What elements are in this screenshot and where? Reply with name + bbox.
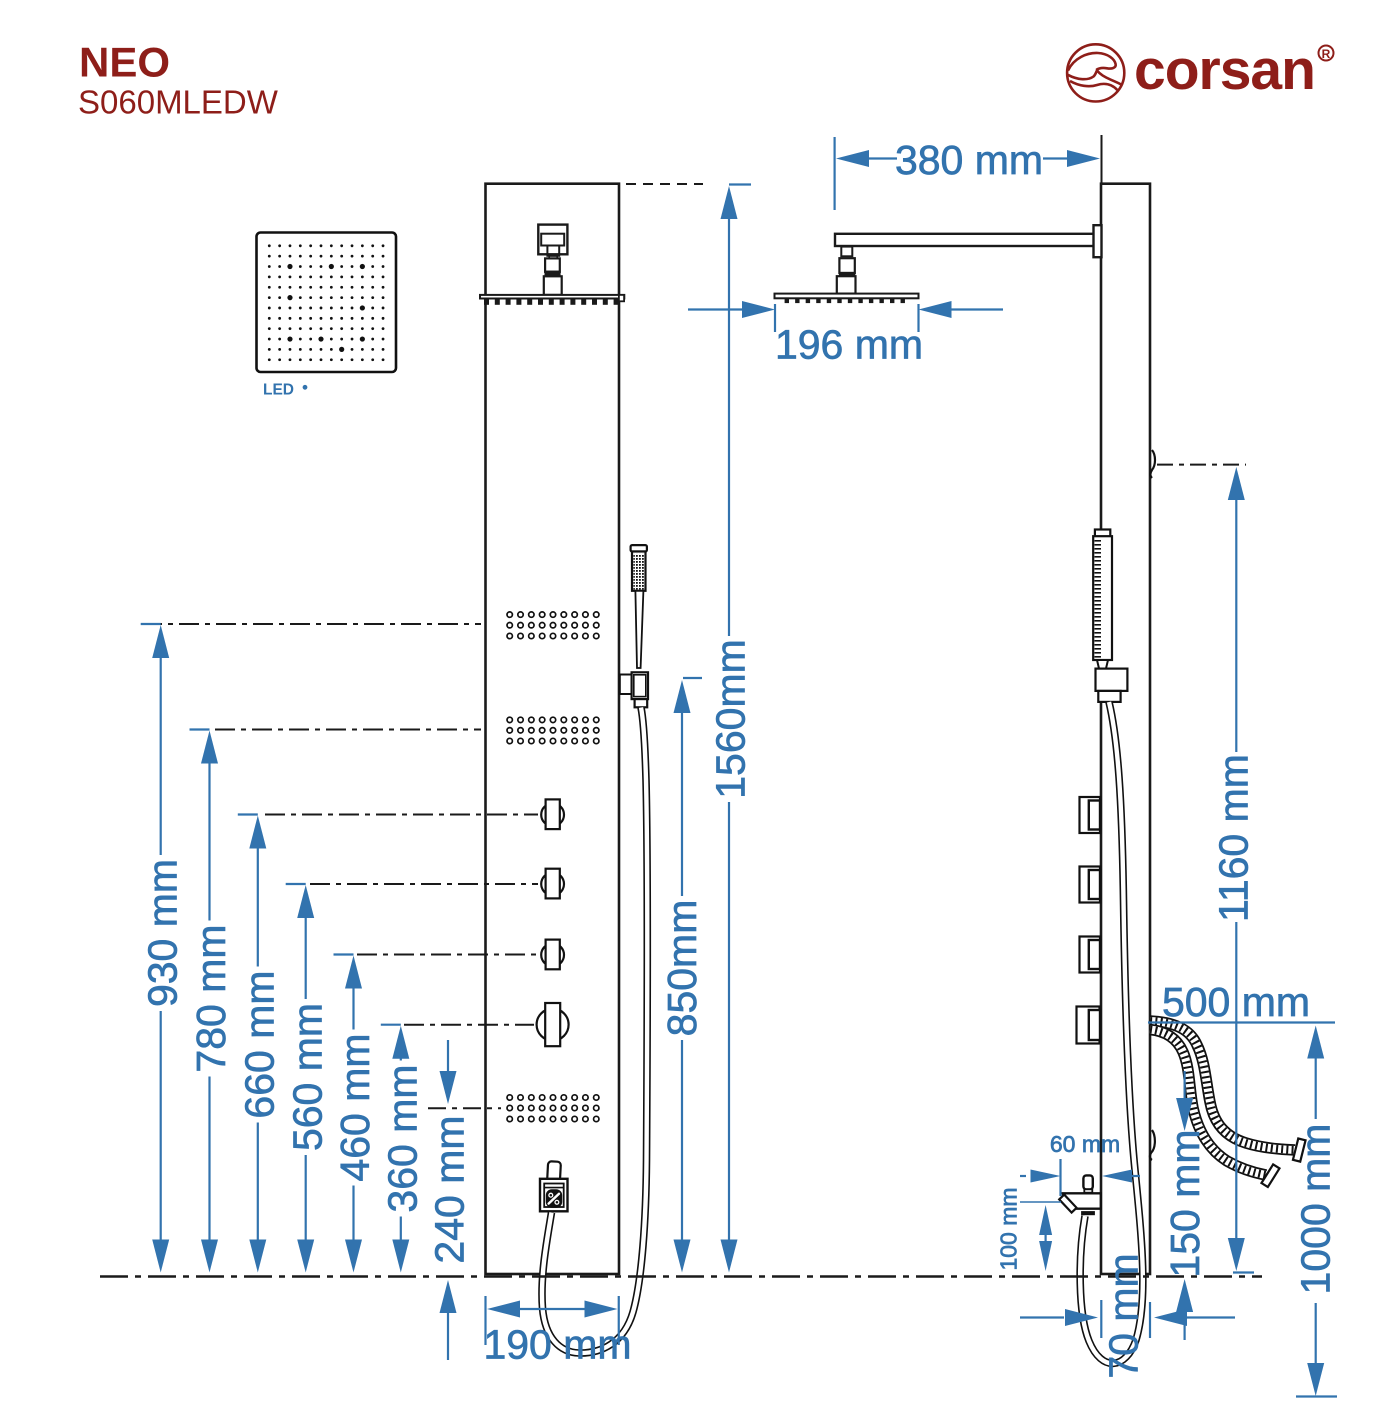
svg-text:100 mm: 100 mm — [996, 1187, 1022, 1270]
svg-text:660 mm: 660 mm — [236, 970, 282, 1118]
svg-text:1160 mm: 1160 mm — [1211, 754, 1257, 922]
svg-text:560 mm: 560 mm — [284, 1003, 330, 1151]
svg-text:70 mm: 70 mm — [1101, 1253, 1147, 1378]
svg-text:150 mm: 150 mm — [1162, 1129, 1208, 1277]
svg-text:1560mm: 1560mm — [708, 639, 754, 799]
svg-text:S060MLEDW: S060MLEDW — [78, 84, 279, 121]
svg-text:LED: LED — [263, 382, 294, 399]
svg-text:780 mm: 780 mm — [188, 924, 234, 1072]
svg-text:500 mm: 500 mm — [1162, 979, 1310, 1025]
svg-text:190 mm: 190 mm — [483, 1322, 631, 1368]
svg-text:930 mm: 930 mm — [139, 859, 185, 1007]
svg-text:380 mm: 380 mm — [895, 137, 1043, 183]
svg-text:NEO: NEO — [79, 39, 170, 86]
svg-text:460 mm: 460 mm — [332, 1033, 378, 1181]
svg-text:196 mm: 196 mm — [775, 322, 923, 368]
svg-text:240 mm: 240 mm — [427, 1115, 473, 1263]
svg-text:corsan: corsan — [1134, 38, 1315, 102]
svg-text:60 mm: 60 mm — [1050, 1131, 1120, 1157]
svg-text:850mm: 850mm — [659, 900, 705, 1037]
svg-text:R: R — [1322, 47, 1331, 61]
svg-text:1000 mm: 1000 mm — [1293, 1124, 1339, 1295]
svg-text:360 mm: 360 mm — [379, 1064, 425, 1212]
